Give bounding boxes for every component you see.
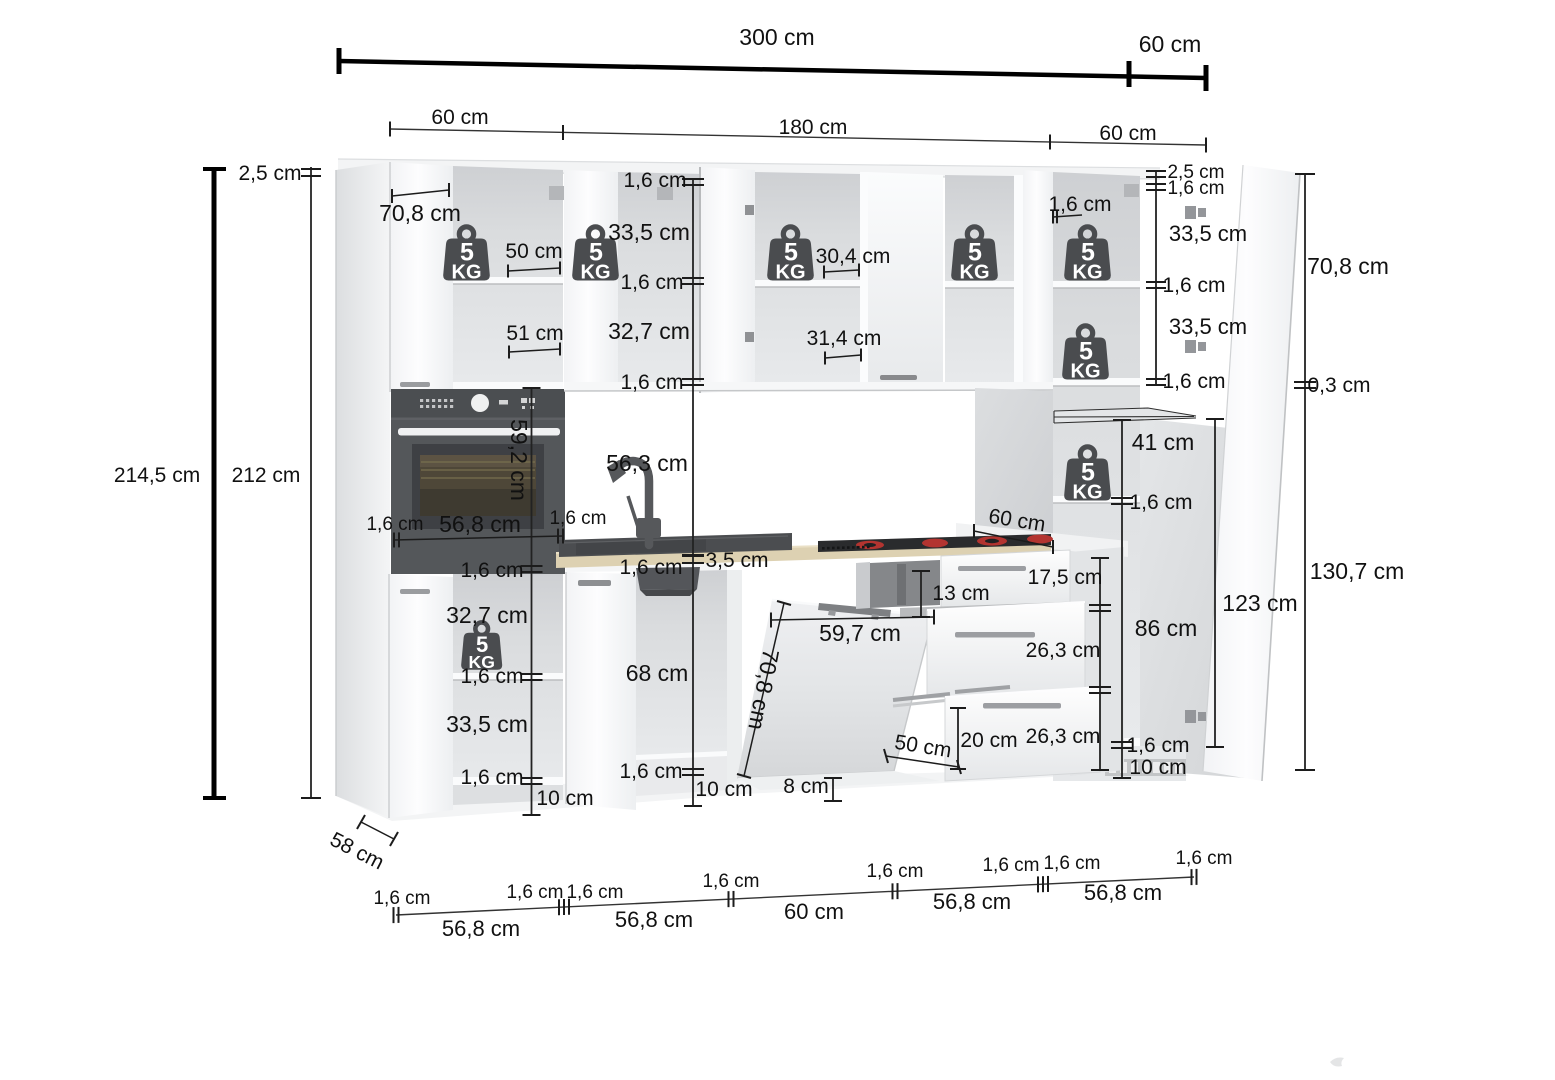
- svg-text:56,8 cm: 56,8 cm: [933, 889, 1011, 914]
- svg-text:1,6 cm: 1,6 cm: [460, 559, 523, 582]
- svg-text:10 cm: 10 cm: [695, 778, 752, 801]
- svg-text:33,5 cm: 33,5 cm: [608, 219, 690, 245]
- svg-text:212 cm: 212 cm: [232, 464, 301, 487]
- svg-text:33,5 cm: 33,5 cm: [1169, 314, 1247, 339]
- svg-text:180 cm: 180 cm: [779, 116, 848, 139]
- svg-text:60 cm: 60 cm: [1099, 122, 1156, 145]
- svg-text:1,6 cm: 1,6 cm: [619, 556, 682, 579]
- svg-text:8 cm: 8 cm: [783, 775, 829, 798]
- svg-text:10 cm: 10 cm: [536, 787, 593, 810]
- svg-text:1,6 cm: 1,6 cm: [1175, 848, 1232, 869]
- svg-text:32,7 cm: 32,7 cm: [446, 602, 528, 628]
- svg-text:33,5 cm: 33,5 cm: [446, 711, 528, 737]
- svg-text:10 cm: 10 cm: [1129, 756, 1186, 779]
- svg-text:1,6 cm: 1,6 cm: [1162, 370, 1225, 393]
- svg-text:60 cm: 60 cm: [784, 899, 844, 924]
- svg-text:1,6 cm: 1,6 cm: [460, 665, 523, 688]
- svg-text:41 cm: 41 cm: [1132, 429, 1195, 455]
- svg-text:56,8 cm: 56,8 cm: [1084, 880, 1162, 905]
- svg-text:1,6 cm: 1,6 cm: [1162, 274, 1225, 297]
- svg-text:56,8 cm: 56,8 cm: [615, 907, 693, 932]
- svg-text:56,8 cm: 56,8 cm: [442, 916, 520, 941]
- svg-text:31,4 cm: 31,4 cm: [807, 327, 882, 350]
- svg-text:1,6 cm: 1,6 cm: [620, 271, 683, 294]
- svg-text:1,6 cm: 1,6 cm: [1129, 491, 1192, 514]
- svg-text:68 cm: 68 cm: [626, 660, 689, 686]
- svg-text:60 cm: 60 cm: [431, 106, 488, 129]
- svg-text:2,5 cm: 2,5 cm: [238, 162, 301, 185]
- svg-text:59,2 cm: 59,2 cm: [506, 419, 532, 501]
- svg-text:1,6 cm: 1,6 cm: [366, 514, 423, 535]
- svg-text:1,6 cm: 1,6 cm: [702, 871, 759, 892]
- svg-text:1,6 cm: 1,6 cm: [1126, 734, 1189, 757]
- svg-text:59,7 cm: 59,7 cm: [819, 620, 901, 646]
- svg-text:1,6 cm: 1,6 cm: [1048, 193, 1111, 216]
- svg-text:123 cm: 123 cm: [1222, 590, 1297, 616]
- svg-text:0,3 cm: 0,3 cm: [1307, 374, 1370, 397]
- svg-text:1,6 cm: 1,6 cm: [549, 508, 606, 529]
- svg-text:33,5 cm: 33,5 cm: [1169, 221, 1247, 246]
- svg-text:32,7 cm: 32,7 cm: [608, 318, 690, 344]
- svg-text:26,3 cm: 26,3 cm: [1026, 725, 1101, 748]
- svg-text:17,5 cm: 17,5 cm: [1028, 566, 1103, 589]
- svg-text:26,3 cm: 26,3 cm: [1026, 639, 1101, 662]
- svg-text:3,5 cm: 3,5 cm: [705, 549, 768, 572]
- svg-text:1,6 cm: 1,6 cm: [460, 766, 523, 789]
- svg-text:300 cm: 300 cm: [739, 24, 814, 50]
- svg-text:30,4 cm: 30,4 cm: [816, 245, 891, 268]
- svg-text:56,8 cm: 56,8 cm: [439, 511, 521, 537]
- svg-text:1,6 cm: 1,6 cm: [619, 760, 682, 783]
- svg-text:1,6 cm: 1,6 cm: [620, 371, 683, 394]
- svg-text:20 cm: 20 cm: [960, 729, 1017, 752]
- svg-text:70,8 cm: 70,8 cm: [1307, 253, 1389, 279]
- svg-text:70,8 cm: 70,8 cm: [379, 200, 461, 226]
- svg-text:51 cm: 51 cm: [506, 322, 563, 345]
- svg-text:130,7 cm: 130,7 cm: [1310, 558, 1405, 584]
- svg-text:1,6 cm: 1,6 cm: [506, 882, 563, 903]
- svg-text:1,6 cm: 1,6 cm: [373, 888, 430, 909]
- svg-text:1,6 cm: 1,6 cm: [566, 882, 623, 903]
- svg-text:1,6 cm: 1,6 cm: [623, 169, 686, 192]
- svg-text:56,3 cm: 56,3 cm: [606, 450, 688, 476]
- svg-text:1,6 cm: 1,6 cm: [1167, 178, 1224, 199]
- svg-text:1,6 cm: 1,6 cm: [1043, 853, 1100, 874]
- svg-text:13 cm: 13 cm: [932, 582, 989, 605]
- svg-text:1,6 cm: 1,6 cm: [982, 855, 1039, 876]
- svg-text:1,6 cm: 1,6 cm: [866, 861, 923, 882]
- svg-text:86 cm: 86 cm: [1135, 615, 1198, 641]
- svg-text:60 cm: 60 cm: [1139, 31, 1202, 57]
- svg-text:214,5 cm: 214,5 cm: [114, 464, 200, 487]
- svg-text:50 cm: 50 cm: [505, 240, 562, 263]
